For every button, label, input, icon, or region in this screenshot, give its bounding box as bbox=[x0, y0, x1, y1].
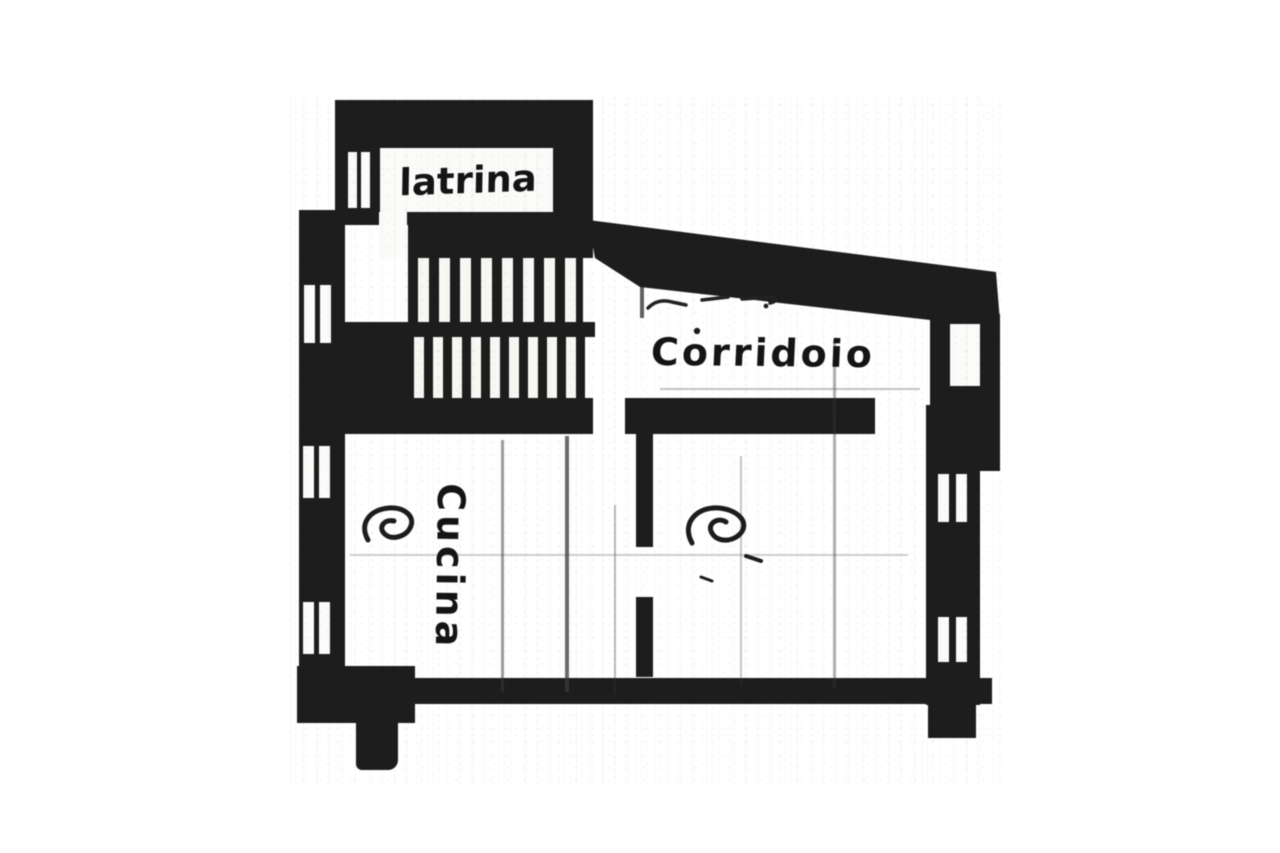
room-label-cucina: Cucina bbox=[406, 448, 473, 687]
floor-plan: latrina Corridoio Cucina bbox=[0, 0, 1280, 853]
scanned-floor-plan-page: latrina Corridoio Cucina bbox=[0, 0, 1280, 853]
plan-vector-layer bbox=[0, 0, 1280, 853]
scan-speck bbox=[764, 304, 769, 309]
fixture-scribble bbox=[688, 508, 743, 543]
scan-mark bbox=[701, 577, 712, 581]
room-label-corridoio: Corridoio bbox=[611, 324, 915, 381]
handwriting-scrawl bbox=[648, 301, 686, 308]
room-label-latrina: latrina bbox=[382, 147, 555, 215]
scan-mark bbox=[746, 556, 761, 561]
fixture-scribble bbox=[365, 508, 412, 540]
